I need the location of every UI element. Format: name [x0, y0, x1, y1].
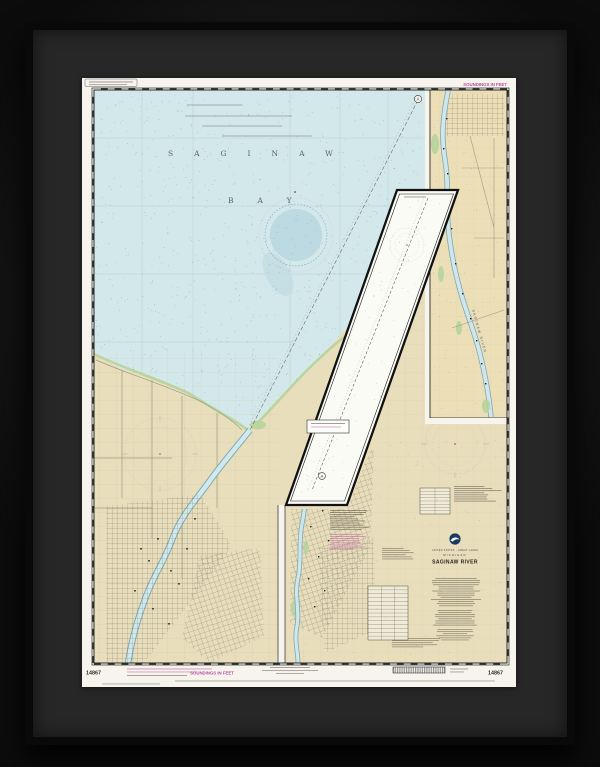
strip-content: SAGINAW RIVER [430, 90, 507, 418]
nautical-chart-svg: A SAGINAW BAY [82, 78, 516, 687]
channel-marker-top: A [414, 95, 421, 102]
channel-marker-inset: A [319, 473, 326, 480]
framed-chart-photo: A SAGINAW BAY [0, 0, 600, 767]
compass-center-dot [294, 191, 296, 193]
picture-frame: A SAGINAW BAY [25, 22, 575, 745]
title-region-line: UNITED STATES - GREAT LAKES [432, 549, 478, 552]
chart-title: SAGINAW RIVER [432, 560, 478, 566]
bottom-bar-scale [393, 667, 445, 673]
chart-number-bottom-right: 14867 [488, 671, 503, 677]
bay-label-bay: BAY [228, 196, 316, 205]
channel-marker-letter-2: A [321, 474, 324, 479]
soundings-note-bottom: SOUNDINGS IN FEET [190, 671, 234, 676]
bay-label-saginaw: SAGINAW [168, 149, 354, 158]
title-state: MICHIGAN [443, 553, 466, 557]
noaa-logo [449, 533, 460, 544]
strip-city-grid [445, 94, 504, 136]
channel-marker-letter: A [417, 97, 420, 102]
chart-paper: A SAGINAW BAY [82, 78, 516, 687]
shoal-area [270, 209, 322, 261]
strip-bottom-gutter [425, 418, 507, 424]
soundings-note-top: SOUNDINGS IN FEET [463, 82, 507, 87]
chart-number-bottom-left: 14867 [86, 671, 101, 677]
top-left-note-box [85, 79, 137, 87]
bottom-gutter [278, 505, 285, 663]
